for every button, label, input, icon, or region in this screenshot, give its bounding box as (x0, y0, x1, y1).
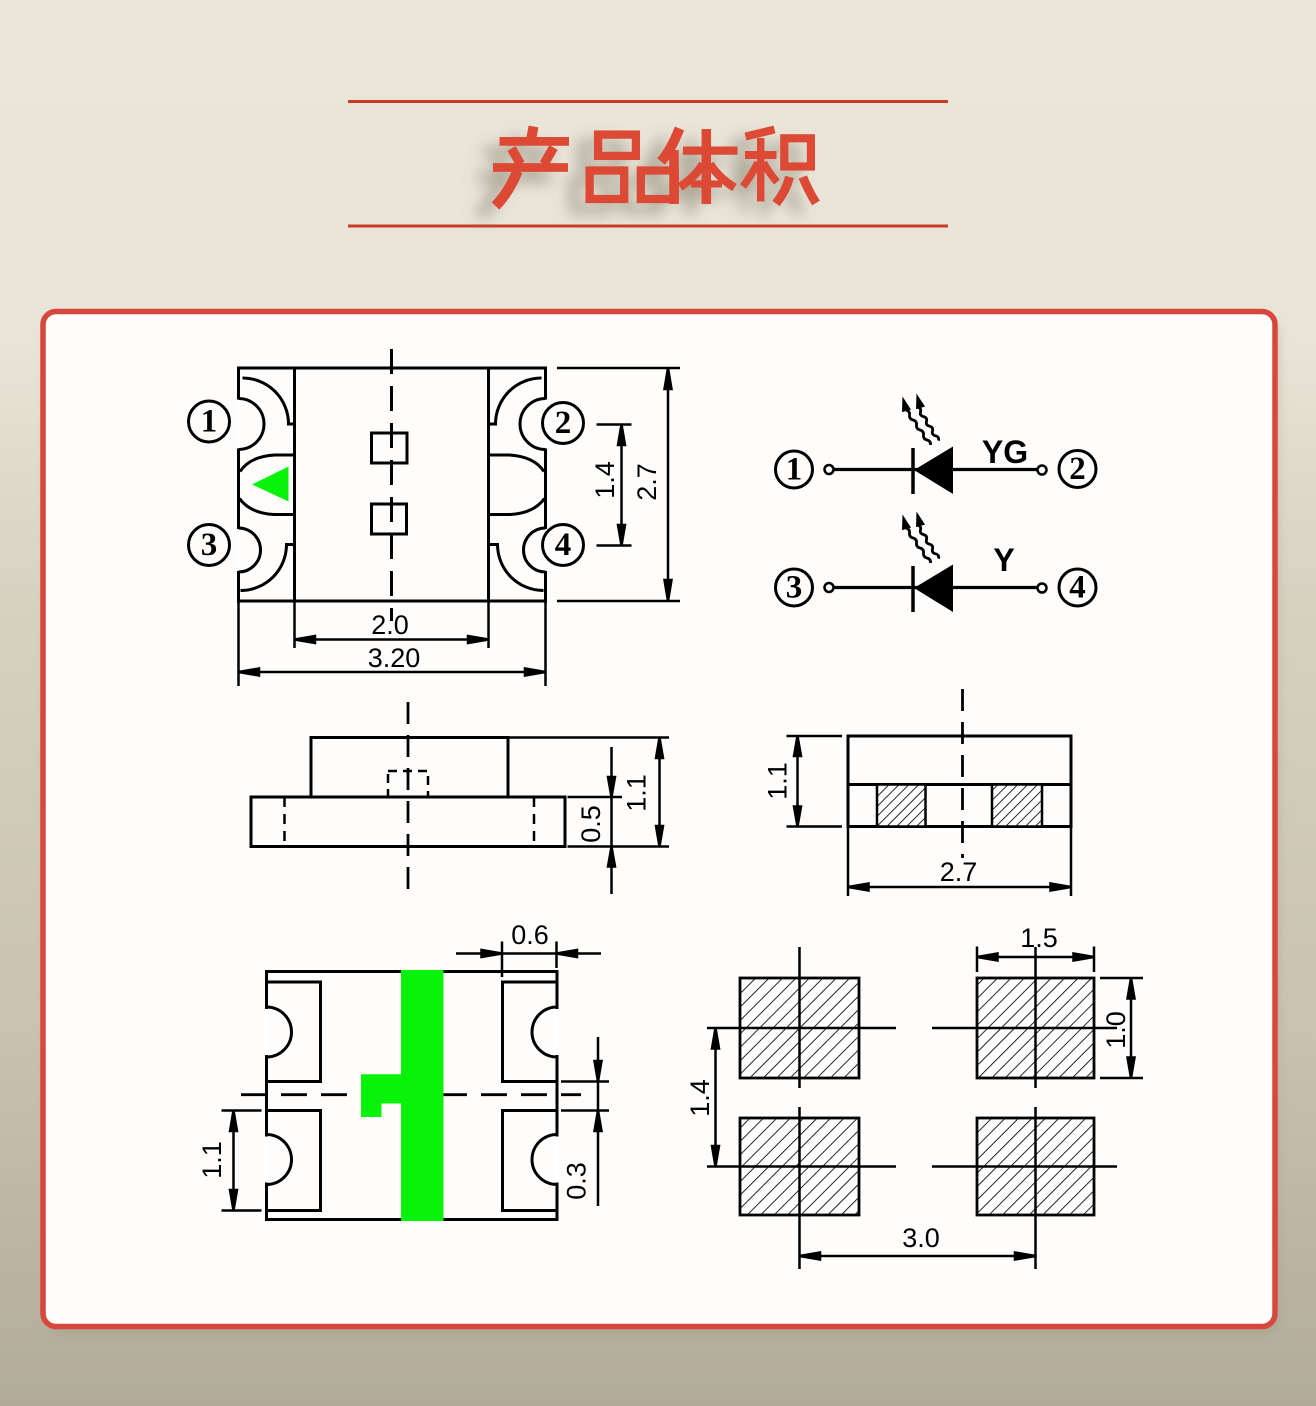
svg-text:0.3: 0.3 (562, 1162, 592, 1200)
svg-text:1.1: 1.1 (622, 774, 652, 812)
svg-text:3.20: 3.20 (368, 643, 421, 673)
svg-text:1.5: 1.5 (1020, 923, 1058, 953)
svg-text:2.7: 2.7 (632, 463, 662, 501)
svg-text:2: 2 (1069, 451, 1086, 487)
svg-text:2.0: 2.0 (371, 610, 409, 640)
svg-text:0.6: 0.6 (511, 920, 549, 950)
svg-text:1: 1 (201, 404, 218, 440)
svg-text:1.1: 1.1 (197, 1141, 227, 1179)
svg-text:Y: Y (993, 542, 1014, 578)
svg-text:1.4: 1.4 (590, 461, 620, 499)
svg-text:3: 3 (201, 527, 218, 563)
svg-text:0.5: 0.5 (576, 805, 606, 843)
svg-text:1.1: 1.1 (763, 762, 793, 800)
svg-text:YG: YG (982, 434, 1028, 470)
svg-text:3: 3 (786, 570, 803, 606)
svg-text:2.7: 2.7 (940, 857, 978, 887)
svg-text:1.0: 1.0 (1101, 1011, 1131, 1049)
svg-text:4: 4 (555, 527, 572, 563)
svg-text:1: 1 (786, 452, 803, 488)
svg-text:4: 4 (1069, 570, 1086, 606)
svg-text:1.4: 1.4 (685, 1079, 715, 1117)
svg-text:3.0: 3.0 (902, 1223, 940, 1253)
svg-text:2: 2 (555, 405, 572, 441)
